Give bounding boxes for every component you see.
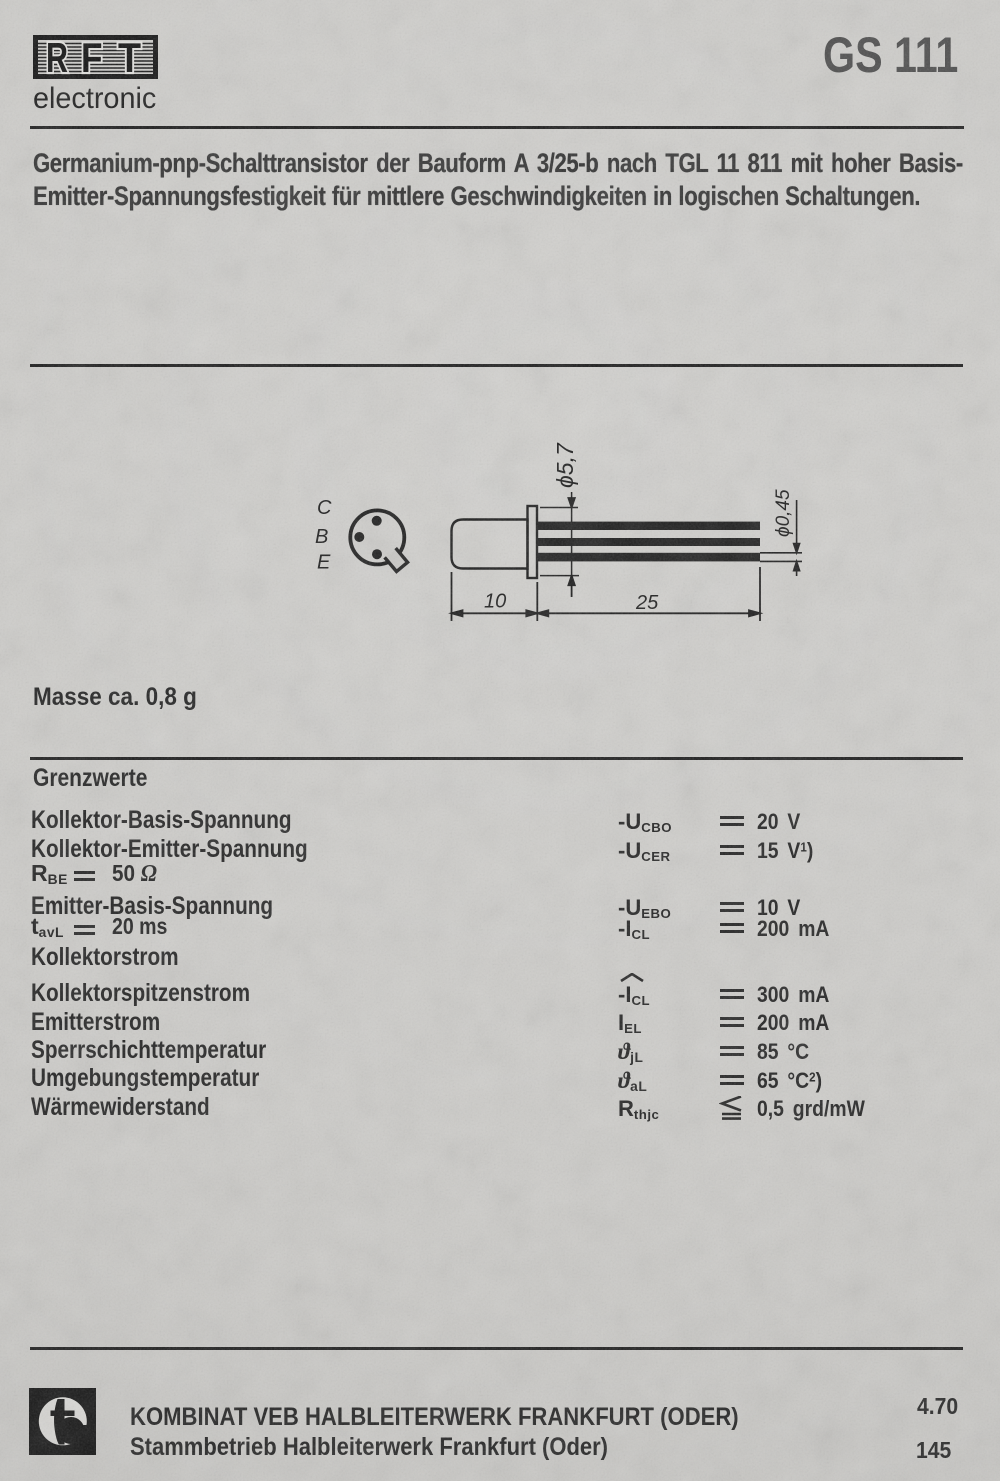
svg-text:E: E bbox=[317, 552, 331, 574]
svg-text:R: R bbox=[46, 35, 68, 79]
svg-text:ϕ5,7: ϕ5,7 bbox=[552, 442, 578, 488]
svg-text:T: T bbox=[118, 35, 141, 79]
svg-text:C: C bbox=[317, 497, 332, 519]
svg-text:25: 25 bbox=[635, 592, 659, 614]
svg-text:10: 10 bbox=[484, 591, 506, 613]
svg-text:B: B bbox=[315, 526, 328, 548]
svg-text:ϕ0,45: ϕ0,45 bbox=[773, 489, 794, 537]
svg-text:F: F bbox=[81, 35, 103, 79]
